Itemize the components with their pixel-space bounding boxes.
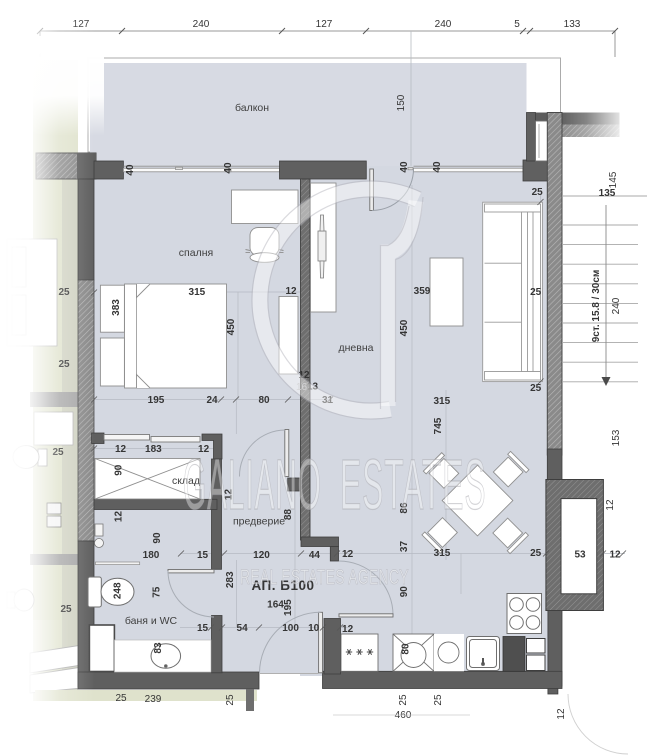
svg-text:25: 25 <box>225 694 236 706</box>
svg-text:240: 240 <box>193 19 210 30</box>
svg-text:54: 54 <box>237 623 249 634</box>
svg-text:12: 12 <box>556 708 567 720</box>
svg-text:153: 153 <box>611 429 622 446</box>
svg-text:дневна: дневна <box>339 342 374 354</box>
svg-text:40: 40 <box>223 162 234 174</box>
svg-text:135: 135 <box>599 188 616 199</box>
svg-text:53: 53 <box>574 550 586 561</box>
svg-text:25: 25 <box>115 693 127 704</box>
svg-text:180: 180 <box>143 550 160 561</box>
svg-text:80: 80 <box>401 643 412 655</box>
svg-text:315: 315 <box>433 396 450 407</box>
svg-text:24: 24 <box>206 395 218 406</box>
svg-text:спалня: спалня <box>179 247 213 259</box>
svg-text:248: 248 <box>113 582 124 599</box>
svg-text:283: 283 <box>225 571 236 588</box>
svg-text:12: 12 <box>113 511 124 523</box>
svg-text:10: 10 <box>308 623 320 634</box>
svg-text:15: 15 <box>197 623 209 634</box>
svg-text:240: 240 <box>611 297 622 314</box>
svg-text:164: 164 <box>267 600 284 611</box>
svg-text:12: 12 <box>115 444 127 455</box>
svg-text:127: 127 <box>316 19 333 30</box>
svg-text:12: 12 <box>342 624 354 635</box>
svg-text:745: 745 <box>433 417 444 434</box>
svg-text:GALIANO: GALIANO <box>183 445 322 525</box>
svg-text:383: 383 <box>111 299 122 316</box>
svg-text:90: 90 <box>113 464 124 476</box>
svg-text:460: 460 <box>395 710 412 721</box>
svg-text:359: 359 <box>414 286 431 297</box>
svg-text:315: 315 <box>434 548 451 559</box>
svg-text:150: 150 <box>396 94 407 111</box>
svg-text:83: 83 <box>153 642 164 654</box>
svg-text:450: 450 <box>226 318 237 335</box>
svg-text:25: 25 <box>433 694 444 706</box>
svg-text:145: 145 <box>608 171 619 188</box>
svg-text:баня и WC: баня и WC <box>125 615 178 627</box>
svg-text:25: 25 <box>532 187 544 198</box>
svg-text:12: 12 <box>605 499 616 511</box>
svg-text:239: 239 <box>145 694 162 705</box>
svg-text:9ст. 15.8 / 30см: 9ст. 15.8 / 30см <box>591 270 602 343</box>
svg-text:37: 37 <box>399 541 410 553</box>
svg-text:183: 183 <box>145 444 162 455</box>
svg-text:REAL ESTATES AGENCY: REAL ESTATES AGENCY <box>240 565 409 589</box>
svg-text:240: 240 <box>435 19 452 30</box>
svg-text:25: 25 <box>530 287 542 298</box>
svg-text:90: 90 <box>152 532 163 544</box>
svg-text:12: 12 <box>342 549 354 560</box>
svg-text:80: 80 <box>258 395 270 406</box>
svg-text:5: 5 <box>514 19 520 30</box>
svg-text:44: 44 <box>309 550 321 561</box>
svg-text:195: 195 <box>148 395 165 406</box>
svg-text:40: 40 <box>125 164 136 176</box>
svg-text:195: 195 <box>283 599 294 616</box>
svg-text:12: 12 <box>609 550 621 561</box>
svg-text:25: 25 <box>530 548 542 559</box>
svg-text:25: 25 <box>398 694 409 706</box>
svg-text:15: 15 <box>197 550 209 561</box>
svg-text:балкон: балкон <box>235 102 269 114</box>
svg-text:120: 120 <box>253 550 270 561</box>
svg-text:315: 315 <box>189 287 206 298</box>
svg-text:100: 100 <box>282 623 299 634</box>
svg-text:75: 75 <box>151 586 162 598</box>
svg-text:133: 133 <box>564 19 581 30</box>
svg-text:40: 40 <box>432 161 443 173</box>
svg-text:25: 25 <box>530 383 542 394</box>
svg-text:12: 12 <box>285 286 297 297</box>
svg-text:ESTATES: ESTATES <box>340 444 486 524</box>
svg-text:40: 40 <box>399 161 410 173</box>
svg-text:450: 450 <box>399 319 410 336</box>
